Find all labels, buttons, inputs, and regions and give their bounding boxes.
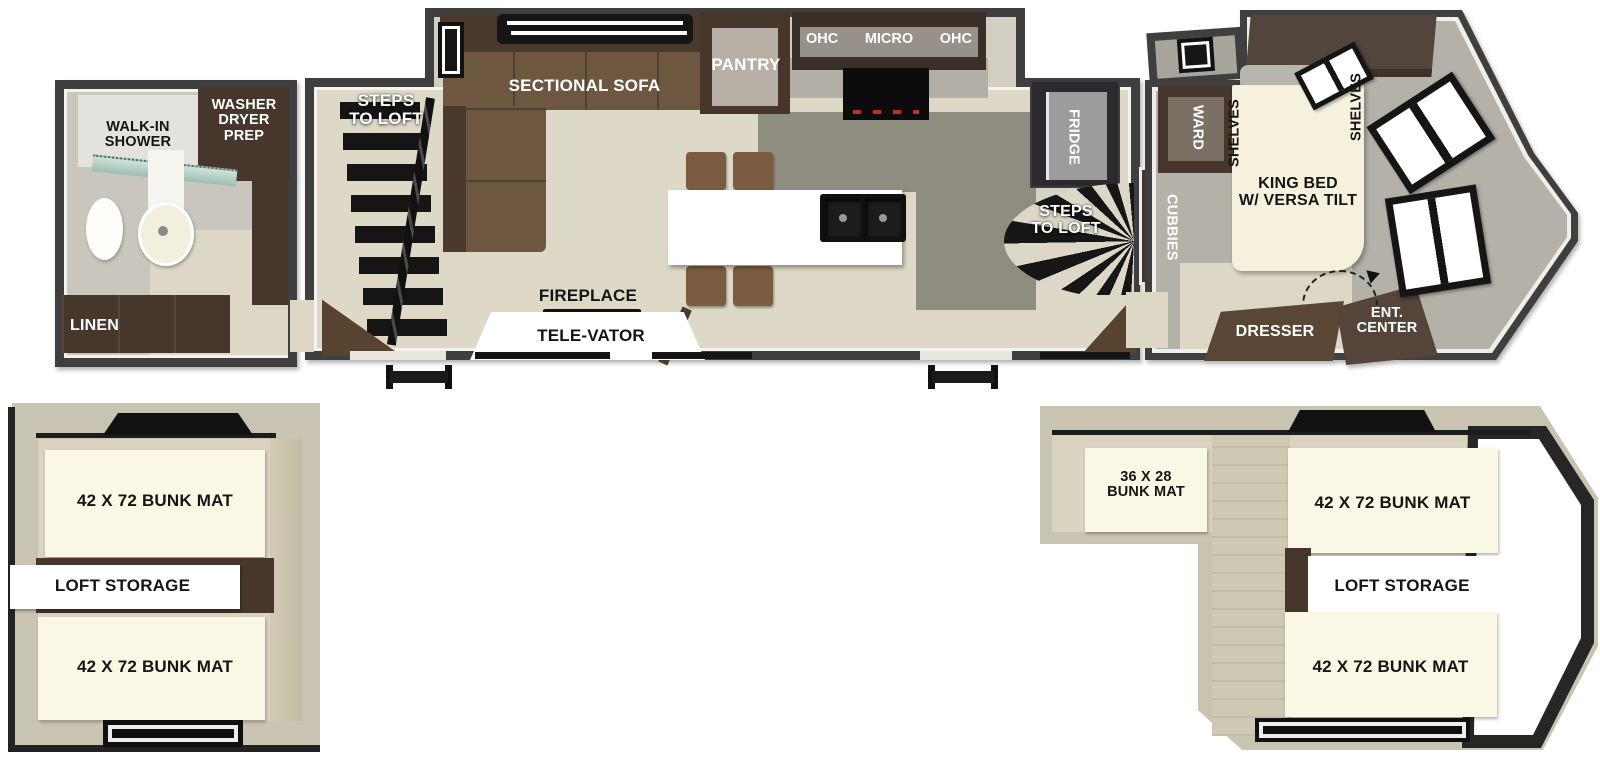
bottom-window-slot <box>652 352 752 359</box>
sink-drain <box>158 226 168 236</box>
fireplace-label: FIREPLACE <box>524 287 652 305</box>
ent-center-label: ENT. CENTER <box>1342 306 1432 337</box>
stairwell-opening <box>103 413 253 435</box>
linen-label: LINEN <box>70 318 156 335</box>
pantry-label: PANTRY <box>702 56 790 74</box>
island-stool <box>733 266 773 306</box>
ohc-right-label: OHC <box>940 31 972 47</box>
skylight-window <box>497 14 693 44</box>
island-stool <box>686 152 726 190</box>
ward-label: WARD <box>1184 92 1210 164</box>
loft-right-bunk-small-label: 36 X 28 BUNK MAT <box>1085 470 1207 501</box>
steps-to-loft-label: STEPS TO LOFT <box>330 92 442 128</box>
loft-right-storage-label: LOFT STORAGE <box>1302 577 1502 595</box>
entry-steps <box>928 363 998 391</box>
door-gap <box>920 351 1012 360</box>
bathroom-tall-cabinet <box>252 140 288 305</box>
fridge-label: FRIDGE <box>1060 94 1086 180</box>
side-window <box>438 22 464 78</box>
tele-vator-label: TELE-VATOR <box>500 327 682 345</box>
loft-right-bunk-bottom-label: 42 X 72 BUNK MAT <box>1288 658 1493 676</box>
stairwell-opening <box>1288 410 1436 432</box>
island-double-sink <box>820 194 906 242</box>
loft-left-storage-label: LOFT STORAGE <box>15 577 230 595</box>
king-bed-label: KING BED W/ VERSA TILT <box>1230 176 1366 210</box>
bedroom-window <box>1385 184 1492 297</box>
island-stool <box>686 266 726 306</box>
shelves-right-label: SHELVES <box>1346 54 1368 160</box>
sofa-chaise <box>466 106 546 252</box>
steps-to-loft-spiral-label: STEPS TO LOFT <box>1008 204 1124 238</box>
door-gap <box>350 351 446 360</box>
bedroom-passage-gap <box>1126 292 1168 348</box>
bottom-window-slot <box>1040 352 1130 359</box>
island-stool <box>733 152 773 190</box>
dresser-label: DRESSER <box>1222 324 1328 341</box>
shelves-left-label: SHELVES <box>1224 80 1246 186</box>
walk-in-shower-label: WALK-IN SHOWER <box>82 120 194 151</box>
washer-dryer-prep-label: WASHER DRYER PREP <box>199 98 289 144</box>
micro-label: MICRO <box>865 31 913 47</box>
staircase-straight <box>338 100 456 352</box>
loft-right-bunk-top-label: 42 X 72 BUNK MAT <box>1290 494 1495 512</box>
loft-corridor <box>1212 434 1290 736</box>
loft-left-side-wall <box>270 439 302 721</box>
loft-left-bunk-bottom-label: 42 X 72 BUNK MAT <box>45 658 265 676</box>
bottom-window-slot <box>475 352 610 359</box>
loft-hatch <box>103 720 243 747</box>
kitchen-floor-zone-a <box>758 112 1036 192</box>
stove <box>843 68 929 120</box>
loft-hatch <box>1255 718 1470 742</box>
floorplan-canvas: WALK-IN SHOWER WASHER DRYER PREP LINEN S… <box>0 0 1600 757</box>
ohc-left-label: OHC <box>806 31 838 47</box>
entry-steps <box>386 363 452 391</box>
bathroom-door-gap <box>290 300 314 352</box>
sectional-sofa-label: SECTIONAL SOFA <box>492 77 677 95</box>
toilet <box>86 198 123 260</box>
ohc-micro-ohc-labels: OHC MICRO OHC <box>800 31 978 47</box>
loft-left-bunk-top-label: 42 X 72 BUNK MAT <box>45 492 265 510</box>
cubbies-label: CUBBIES <box>1158 186 1184 268</box>
